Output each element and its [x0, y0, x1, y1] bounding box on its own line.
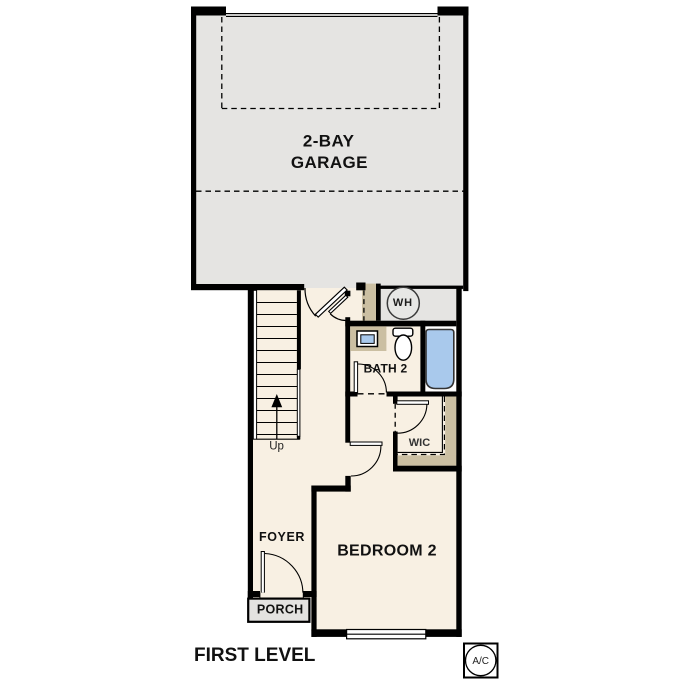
svg-text:BATH 2: BATH 2 [364, 362, 408, 376]
svg-text:A/C: A/C [472, 656, 489, 667]
svg-text:WIC: WIC [409, 437, 430, 449]
svg-text:FIRST LEVEL: FIRST LEVEL [194, 645, 316, 666]
svg-text:GARAGE: GARAGE [291, 153, 368, 172]
svg-text:WH: WH [393, 297, 413, 309]
svg-text:BEDROOM 2: BEDROOM 2 [337, 543, 437, 560]
svg-text:Up: Up [269, 441, 284, 453]
svg-text:FOYER: FOYER [259, 530, 305, 544]
svg-text:2-BAY: 2-BAY [303, 132, 355, 151]
svg-text:PORCH: PORCH [257, 603, 304, 617]
